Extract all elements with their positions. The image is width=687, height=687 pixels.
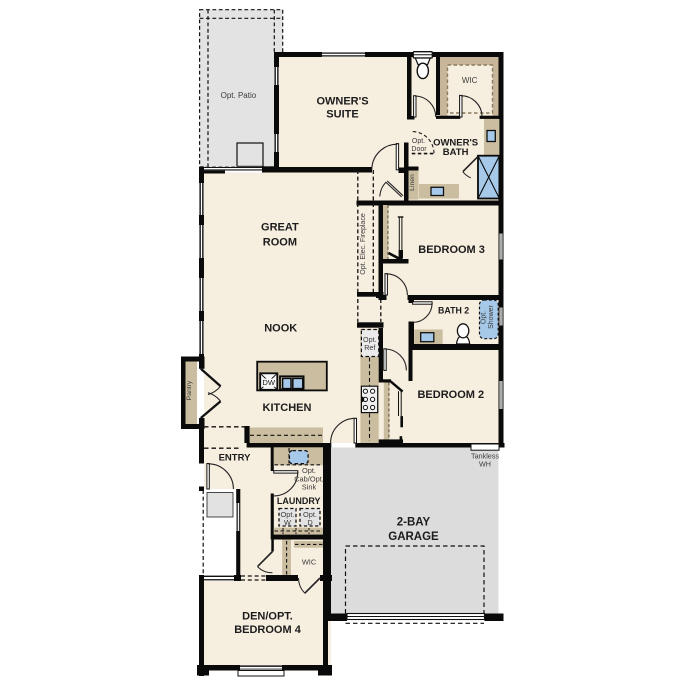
svg-text:2-BAY: 2-BAY	[397, 517, 431, 529]
svg-text:ENTRY: ENTRY	[219, 453, 252, 464]
svg-text:Sink: Sink	[302, 483, 317, 492]
svg-text:WIC: WIC	[462, 76, 478, 85]
svg-text:WIC: WIC	[302, 558, 317, 567]
svg-text:BEDROOM 4: BEDROOM 4	[234, 624, 302, 636]
svg-text:Opt. Patio: Opt. Patio	[221, 91, 257, 100]
svg-text:D: D	[307, 518, 312, 527]
svg-text:OWNER'S: OWNER'S	[316, 96, 368, 108]
svg-text:NOOK: NOOK	[264, 323, 297, 335]
svg-text:GREAT: GREAT	[261, 222, 299, 234]
svg-text:BEDROOM 3: BEDROOM 3	[418, 244, 485, 256]
svg-text:Opt. Elec. Fireplace: Opt. Elec. Fireplace	[360, 213, 367, 275]
svg-text:Pantry: Pantry	[186, 380, 193, 400]
svg-text:BATH: BATH	[443, 147, 469, 158]
svg-text:DEN/OPT.: DEN/OPT.	[242, 611, 293, 623]
svg-text:ROOM: ROOM	[263, 236, 297, 248]
svg-text:WH: WH	[479, 460, 491, 469]
svg-text:Shower: Shower	[488, 304, 495, 328]
svg-text:KITCHEN: KITCHEN	[263, 402, 312, 414]
svg-text:GARAGE: GARAGE	[388, 531, 439, 543]
svg-text:DW: DW	[262, 378, 275, 387]
svg-text:Opt.: Opt.	[481, 311, 488, 324]
svg-text:SUITE: SUITE	[326, 109, 358, 121]
svg-text:W: W	[284, 518, 291, 527]
svg-text:BEDROOM 2: BEDROOM 2	[417, 389, 484, 401]
svg-text:Opt.: Opt.	[412, 138, 425, 145]
svg-text:Door: Door	[411, 146, 427, 153]
svg-text:LAUNDRY: LAUNDRY	[277, 496, 321, 506]
svg-text:Linen: Linen	[409, 174, 416, 191]
svg-text:Ref: Ref	[364, 343, 375, 352]
svg-text:BATH 2: BATH 2	[438, 306, 469, 316]
